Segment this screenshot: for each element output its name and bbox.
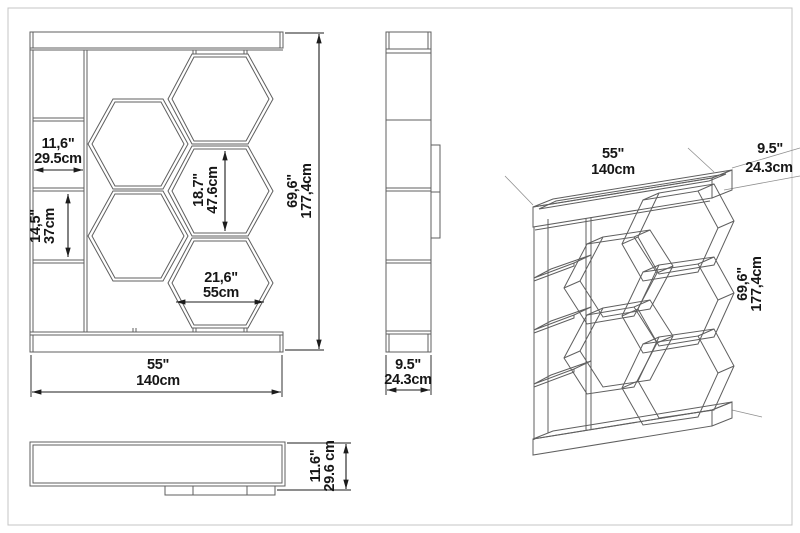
side-view: 9.5" 24.3cm — [384, 32, 440, 395]
technical-drawing-canvas: 11,6" 29.5cm 14,5" 37cm 18.7" 47.6cm 21,… — [0, 0, 800, 533]
side-shelf-lines — [386, 120, 431, 263]
side-bottom-cap — [386, 331, 431, 352]
top-hex-protrusion — [165, 486, 275, 495]
top-depth-label-cm: 29.6 cm — [322, 440, 338, 491]
front-left-wall-and-divider — [30, 48, 87, 332]
page-border — [8, 8, 792, 525]
front-view — [30, 32, 283, 352]
front-compartment-width-label-in: 11,6" — [42, 136, 75, 152]
front-height-label-cm: 177,4cm — [299, 163, 315, 218]
perspective-base-front — [533, 410, 712, 455]
front-hexagon-left-bottom — [88, 191, 188, 281]
side-depth-label-in: 9.5" — [395, 357, 421, 373]
front-hexagon-left-top — [88, 99, 188, 189]
front-compartment-height-label-cm: 37cm — [42, 208, 58, 244]
perspective-depth-label-in: 9.5" — [757, 141, 783, 157]
front-top-shelf — [30, 32, 283, 50]
front-hex-height-label-cm: 47.6cm — [205, 166, 221, 213]
perspective-shelf-3 — [534, 361, 591, 387]
front-hexagon-right-top — [168, 54, 273, 144]
technical-drawing-page: 11,6" 29.5cm 14,5" 37cm 18.7" 47.6cm 21,… — [0, 0, 800, 533]
front-compartment-width-label-cm: 29.5cm — [34, 151, 81, 167]
front-hexagon-right-top-inner — [172, 57, 269, 141]
perspective-wall-and-divider — [534, 217, 591, 440]
front-width-label-cm: 140cm — [136, 373, 180, 389]
perspective-height-label-cm: 177,4cm — [749, 256, 765, 311]
front-hex-width-label-in: 21,6" — [204, 270, 238, 286]
perspective-width-label-in: 55" — [602, 146, 624, 162]
perspective-width-label-cm: 140cm — [591, 162, 635, 178]
front-hexagon-left-bottom-inner — [92, 194, 184, 278]
top-view: 11.6" 29.6 cm — [30, 440, 351, 495]
side-outline — [386, 32, 431, 352]
perspective-shelf-2 — [534, 307, 591, 333]
side-hex-protrusion — [431, 145, 440, 238]
perspective-view: 55" 140cm 9.5" 24.3cm 69,6" 177,4cm — [505, 141, 800, 455]
front-hex-width-label-cm: 55cm — [203, 285, 239, 301]
perspective-depth-label-cm: 24.3cm — [745, 160, 792, 176]
side-top-cap — [386, 32, 431, 53]
front-base — [30, 332, 283, 352]
side-depth-label-cm: 24.3cm — [384, 372, 431, 388]
perspective-hexagon-right-top-back — [638, 184, 734, 274]
perspective-tray-right-end — [712, 170, 732, 198]
perspective-base-right-end — [712, 402, 732, 426]
front-hexagon-left-top-inner — [92, 102, 184, 186]
front-width-label-in: 55" — [147, 357, 169, 373]
top-outline — [30, 442, 285, 486]
